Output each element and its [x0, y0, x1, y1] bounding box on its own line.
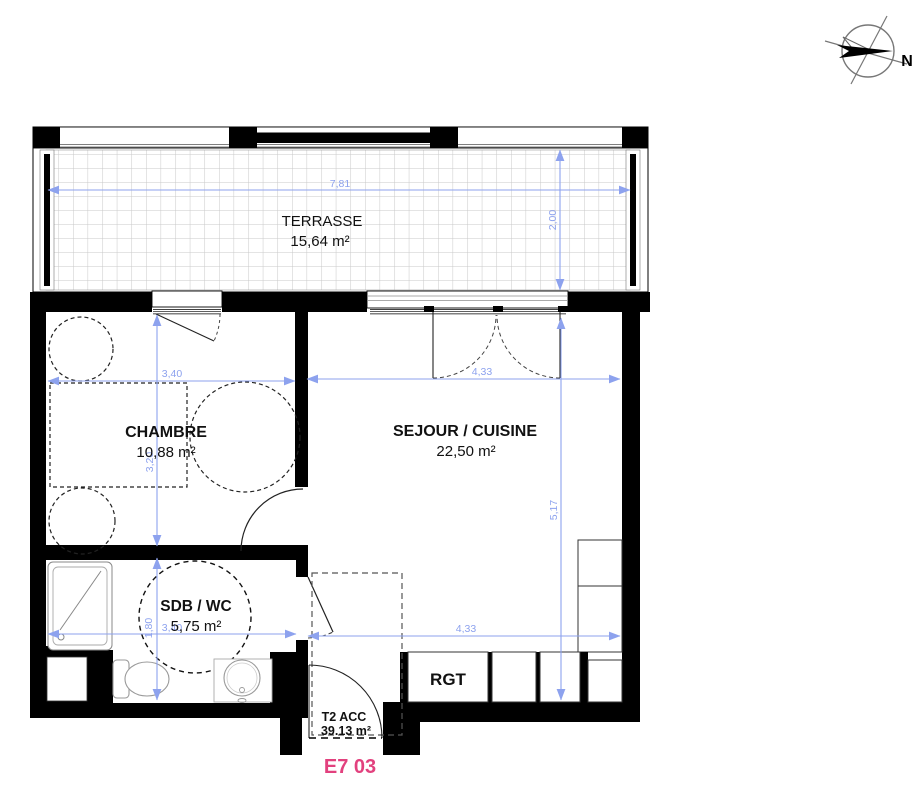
wall-divider — [488, 652, 492, 702]
wall-sejour-bottom — [415, 702, 640, 722]
wall-chambre-sejour — [295, 312, 308, 487]
kitchen-counter-unit — [578, 586, 622, 652]
window-hinge — [424, 306, 434, 312]
railing-post — [229, 127, 257, 148]
unit-area-label: 39.13 m² — [321, 724, 371, 738]
wall-rgt-left — [400, 652, 408, 702]
wall-sink-side — [270, 652, 302, 703]
kitchen-unit — [492, 652, 536, 702]
furniture-circle — [49, 317, 113, 381]
window-hinge — [558, 306, 568, 312]
wall-sdb-bottom — [30, 703, 302, 718]
compass-needle — [837, 45, 893, 58]
toilet-bowl — [125, 662, 169, 696]
railing-post — [622, 127, 648, 148]
dimension-label-chambre-width: 3,40 — [162, 368, 183, 380]
window-swing-leaf — [156, 314, 214, 341]
door-swing-chambre — [241, 489, 303, 551]
wall-right — [622, 292, 640, 722]
french-door-arc-right — [497, 315, 560, 378]
railing-post — [33, 127, 60, 148]
terrace — [33, 127, 648, 292]
terrace-right-railing-bar — [630, 154, 636, 286]
dimension-label-sdb-depth: 1,80 — [143, 618, 155, 639]
wall-sdb-stub — [296, 560, 308, 577]
room-area-sejour: 22,50 m² — [436, 443, 495, 460]
terrace-left-railing-bar — [44, 154, 50, 286]
room-label-sdb: SDB / WC — [160, 598, 231, 615]
kitchen-counter-unit — [578, 540, 622, 586]
wall-entry-left — [280, 702, 302, 755]
wall-chambre-sdb — [30, 545, 308, 560]
window-sejour — [367, 291, 568, 308]
kitchen-unit — [540, 652, 580, 702]
railing-solid-panel — [257, 133, 430, 144]
wall-facade-left — [30, 292, 152, 312]
turning-circle — [139, 561, 251, 673]
duct-box — [47, 657, 87, 701]
room-label-chambre: CHAMBRE — [125, 424, 207, 441]
wall-divider — [580, 652, 588, 702]
room-area-terrasse: 15,64 m² — [290, 233, 349, 250]
kitchen-unit — [588, 660, 622, 702]
dimension-label-terrace-depth: 2,00 — [547, 210, 559, 231]
room-label-sejour: SEJOUR / CUISINE — [393, 423, 537, 440]
window-chambre — [152, 291, 222, 307]
compass-north-label: N — [901, 53, 913, 70]
floor-plan: N — [0, 0, 920, 800]
furniture-circle — [49, 488, 115, 554]
wall-divider — [536, 652, 540, 702]
dimension-label-terrace-width: 7,81 — [330, 178, 351, 190]
compass: N — [825, 16, 913, 84]
railing-post — [430, 127, 458, 148]
unit-type-label: T2 ACC — [322, 710, 367, 724]
window-hinge — [493, 306, 503, 312]
dimension-label-entry-width: 4,33 — [456, 623, 477, 635]
room-area-chambre: 10,88 m² — [136, 444, 195, 461]
room-area-sdb: 5,75 m² — [171, 618, 222, 635]
lot-number-label: E7 03 — [324, 756, 376, 778]
wall-facade-mid — [222, 292, 367, 312]
floor-plan-page: N — [0, 0, 920, 800]
window-swing-arc — [214, 314, 220, 341]
dimension-label-sejour-width: 4,33 — [472, 366, 493, 378]
wall-shower-stub — [90, 650, 113, 703]
dimension-label-sejour-depth: 5,17 — [548, 500, 560, 521]
room-label-rgt: RGT — [430, 670, 467, 689]
room-label-terrasse: TERRASSE — [282, 213, 363, 230]
